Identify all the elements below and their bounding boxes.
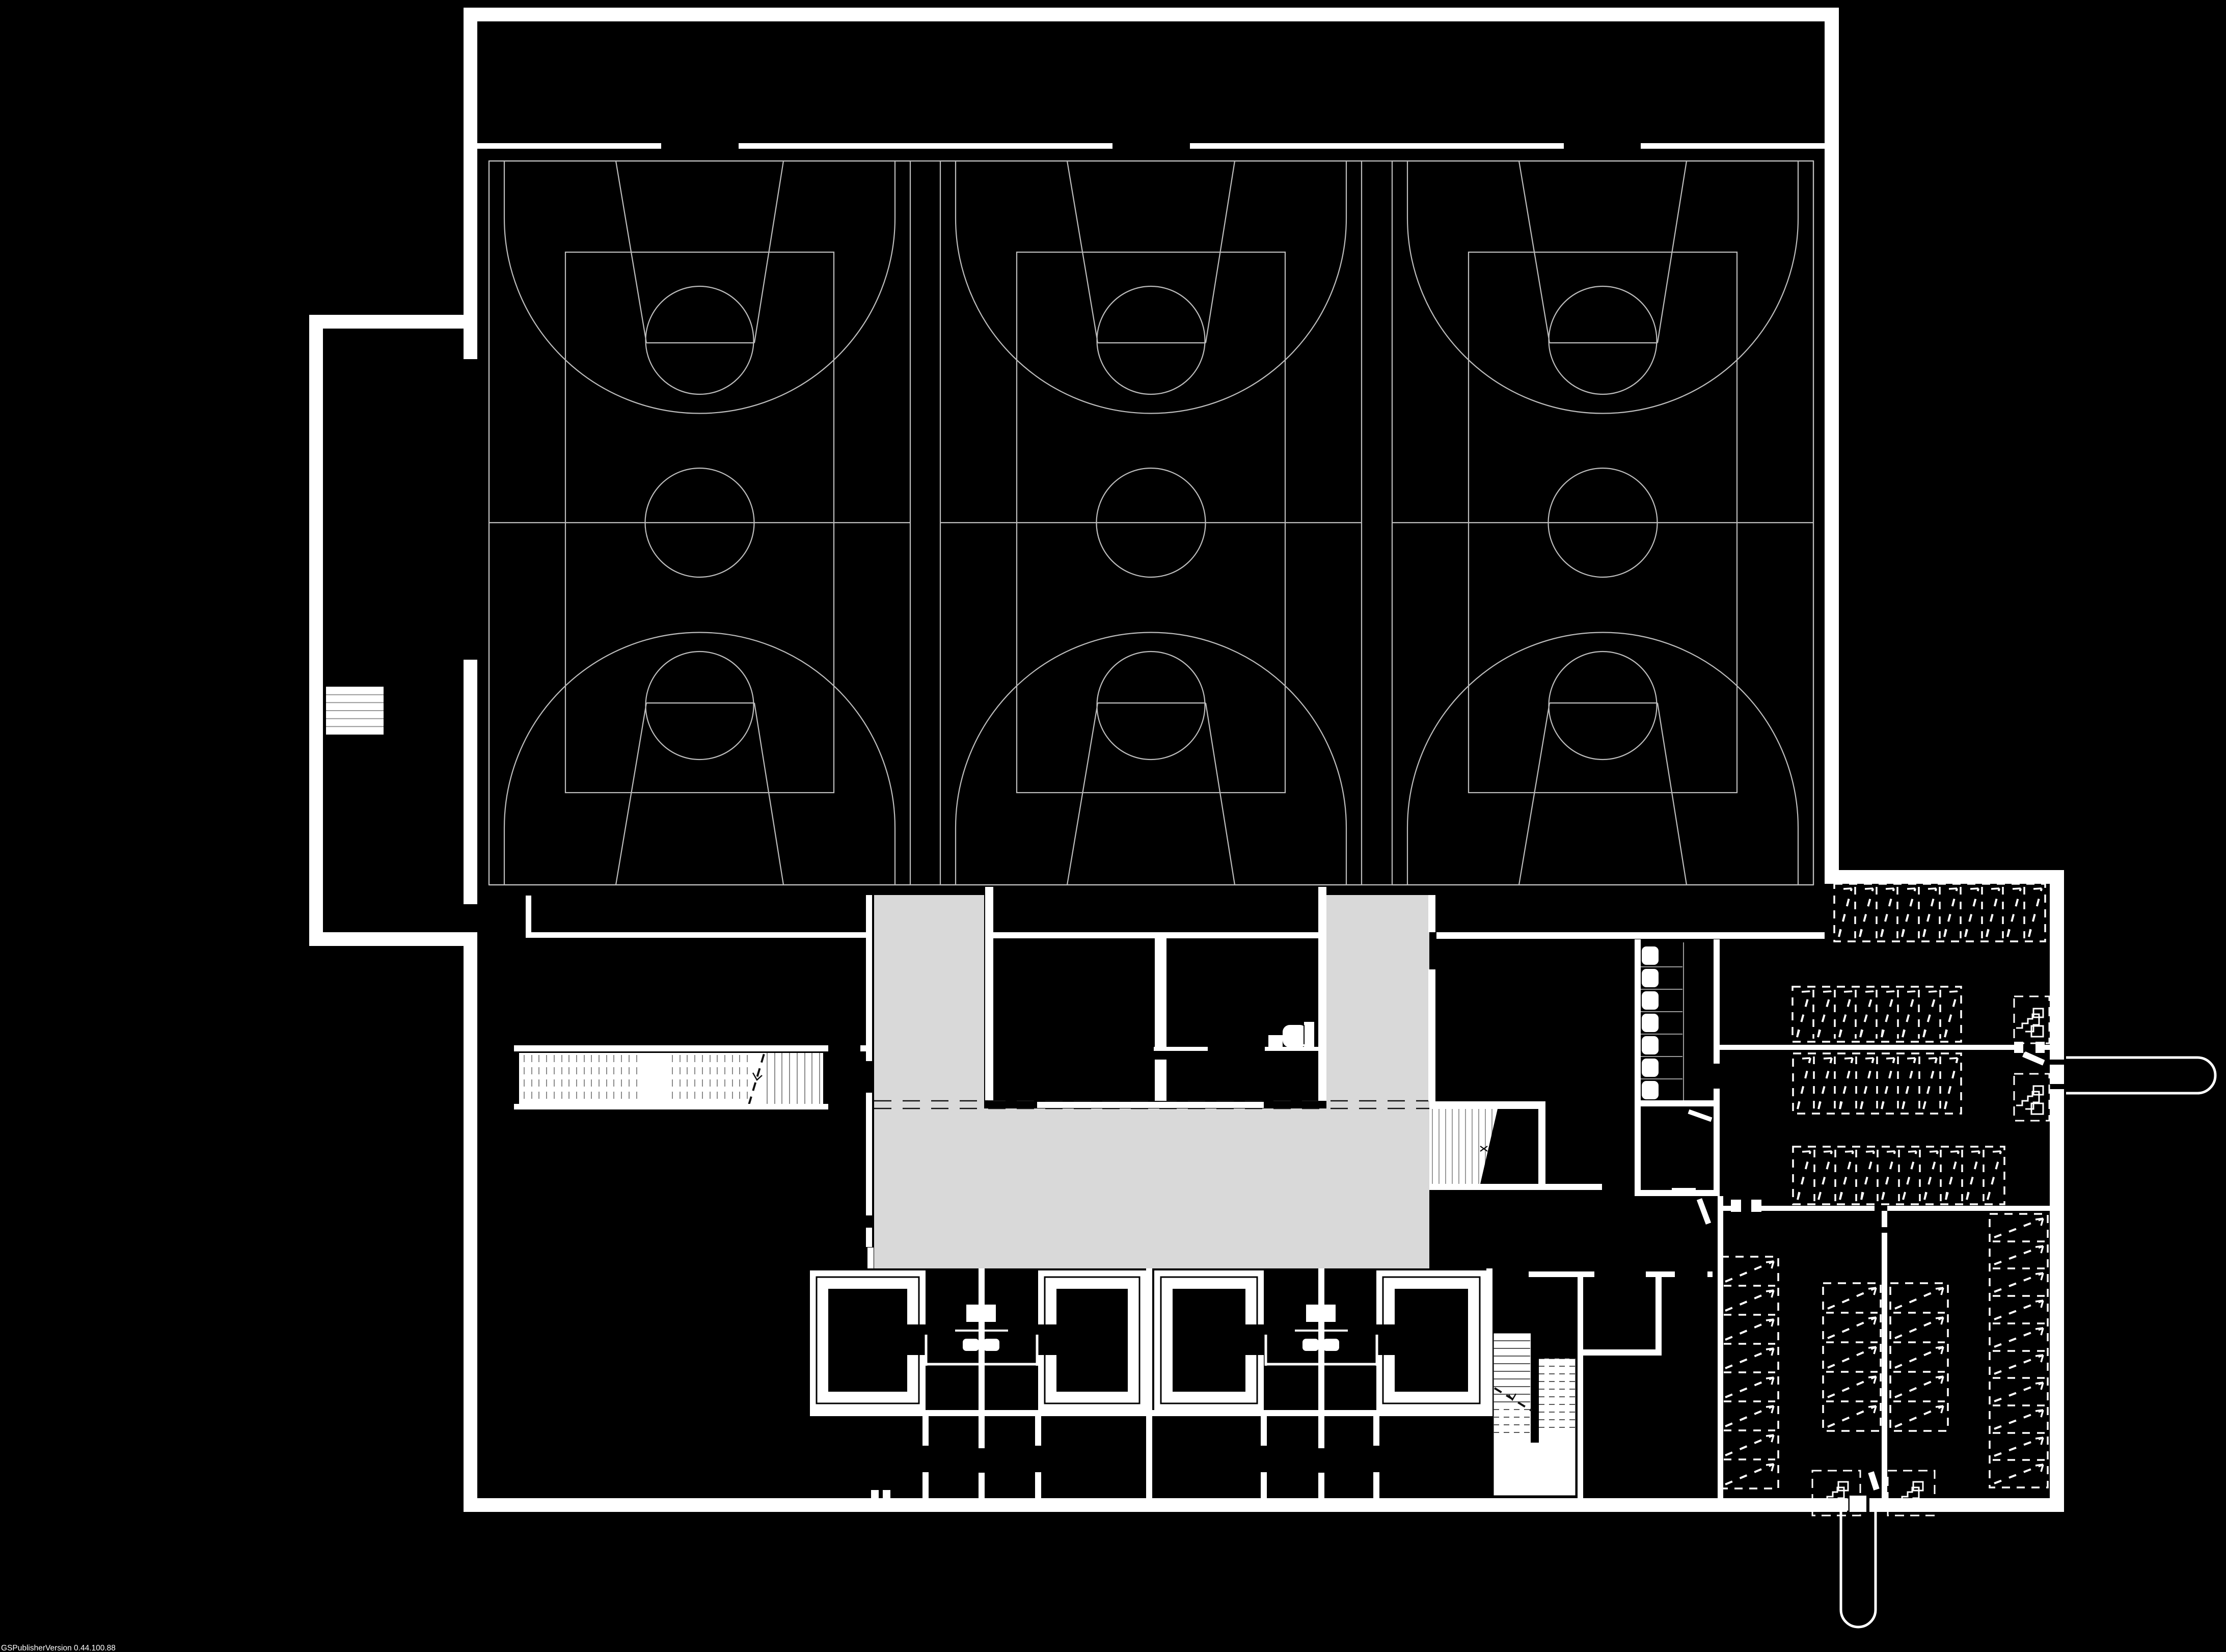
svg-text:GSPublisherVersion 0.44.100.88: GSPublisherVersion 0.44.100.88 [1, 1644, 116, 1652]
